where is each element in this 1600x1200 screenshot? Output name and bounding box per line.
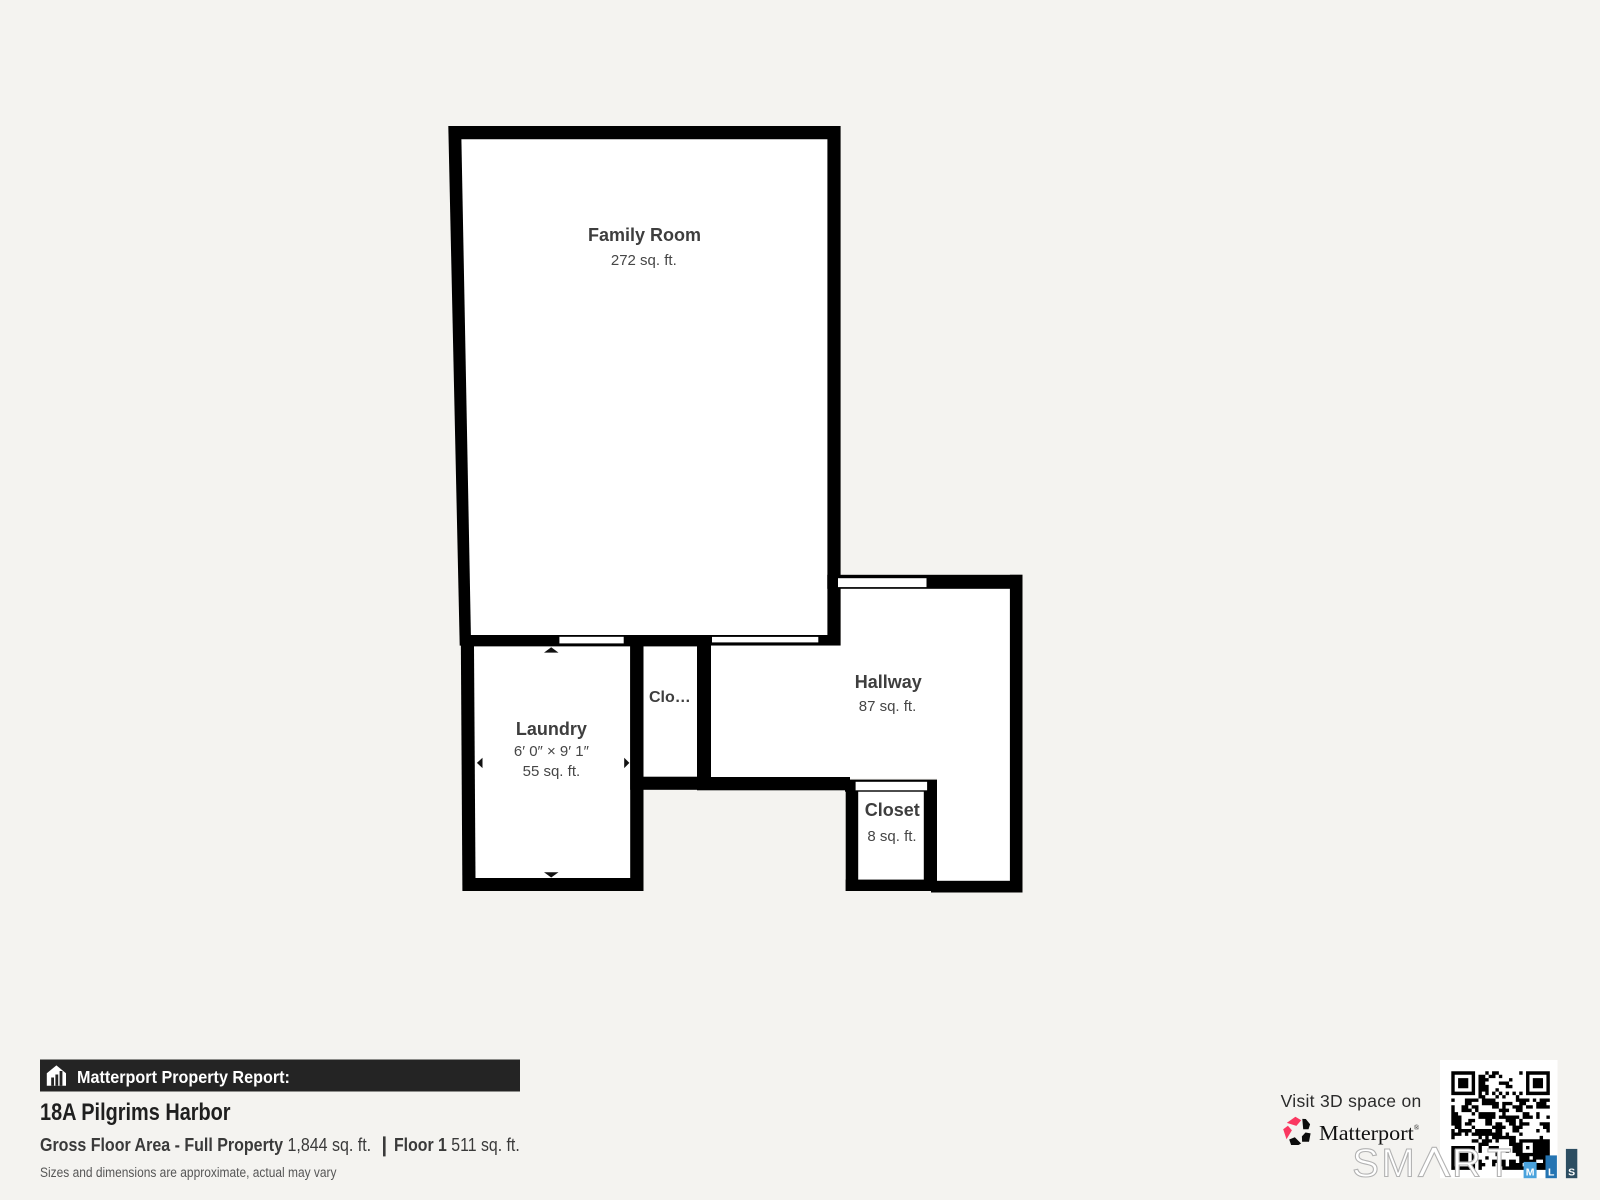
svg-text:M: M — [1526, 1166, 1535, 1178]
svg-text:R: R — [1452, 1142, 1481, 1186]
svg-text:S: S — [1352, 1142, 1379, 1186]
svg-text:S: S — [1568, 1166, 1575, 1178]
svg-text:T: T — [1487, 1142, 1511, 1186]
svg-text:M: M — [1381, 1142, 1414, 1186]
svg-text:L: L — [1548, 1166, 1555, 1178]
